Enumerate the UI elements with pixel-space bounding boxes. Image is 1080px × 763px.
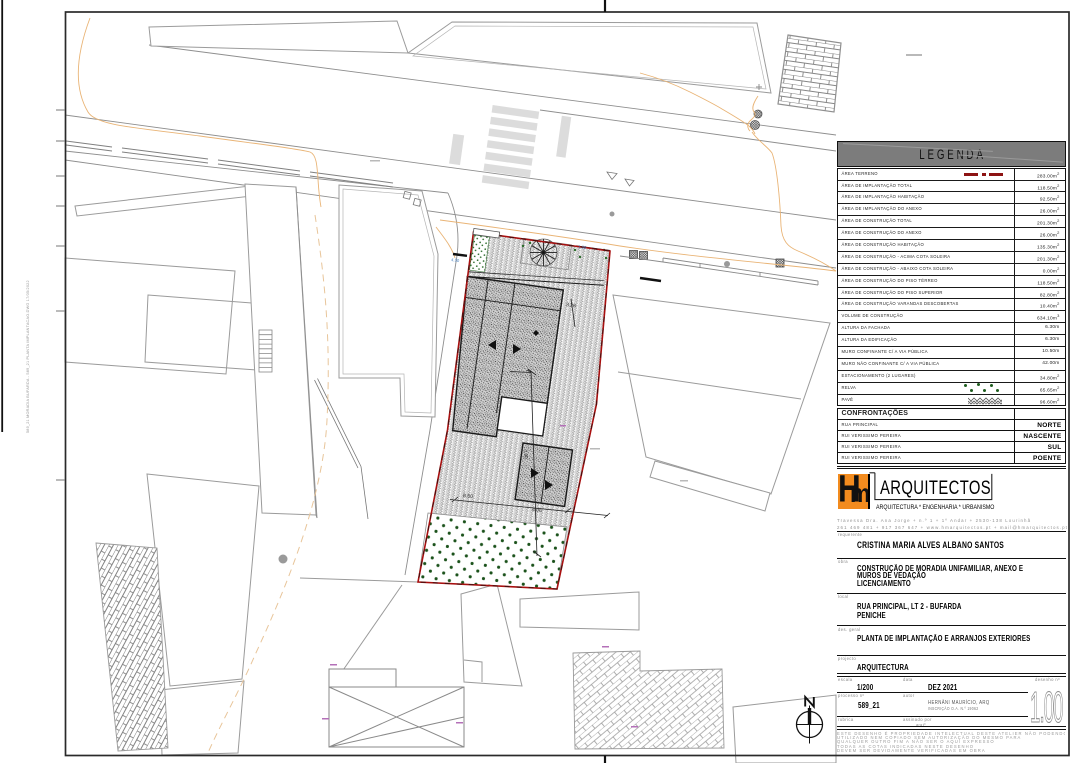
svg-text:4.50: 4.50 xyxy=(451,257,460,263)
svg-text:7.90: 7.90 xyxy=(523,450,529,460)
svg-text:4.06: 4.06 xyxy=(532,507,543,514)
svg-text:8.50: 8.50 xyxy=(463,493,474,500)
